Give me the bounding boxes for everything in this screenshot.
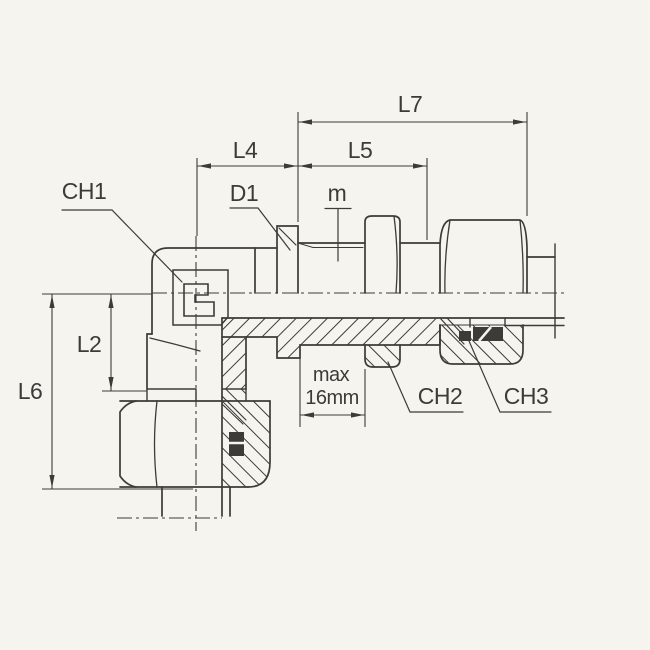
arrow-l2-top: [108, 295, 113, 308]
arrow-l2-bottom: [108, 377, 113, 390]
label-max-line1: max: [313, 364, 350, 386]
arrow-l5-left: [299, 163, 312, 168]
section-hatching: [222, 318, 523, 487]
bulkhead-flange-chamfer: [279, 228, 296, 245]
label-l6: L6: [18, 378, 43, 404]
arrow-l5-right: [413, 163, 426, 168]
arrow-l7-left: [299, 119, 312, 124]
arrow-max-right: [351, 412, 364, 417]
leader-m: [325, 209, 351, 262]
nut-ch3-facet-lines: [445, 220, 523, 293]
label-m: m: [328, 180, 347, 206]
label-ch1: CH1: [62, 178, 107, 204]
leader-ch1: [62, 210, 182, 282]
locknut-facet-line: [394, 216, 397, 293]
arrow-l6-bottom: [49, 475, 54, 488]
bottom-nut-facet-line: [155, 401, 158, 487]
fitting-drawing: CH1 D1 m L4 L5 L7 L2 L6 max 16mm CH2 CH3: [0, 0, 650, 650]
leader-d1: [230, 208, 290, 250]
label-l4: L4: [233, 137, 258, 163]
cutting-ring-right-nub: [459, 331, 471, 341]
label-ch3: CH3: [504, 383, 549, 409]
dimension-arrowheads: [49, 119, 526, 488]
label-max-line2: 16mm: [305, 387, 359, 409]
label-l2: L2: [77, 331, 102, 357]
reference-lines: [42, 294, 193, 489]
technical-drawing-page: CH1 D1 m L4 L5 L7 L2 L6 max 16mm CH2 CH3: [0, 0, 650, 650]
arrow-l4-left: [198, 163, 211, 168]
arrow-l7-right: [513, 119, 526, 124]
label-l7: L7: [398, 91, 423, 117]
label-d1: D1: [230, 180, 258, 206]
locknut-section-hatch: [365, 345, 400, 367]
leader-lines: [62, 208, 551, 412]
logo-stamp-glyph: [184, 284, 214, 316]
elbow-leg-wall-hatch: [222, 337, 246, 389]
elbow-body-fillet: [150, 338, 200, 351]
nut-ch3-outline: [440, 220, 527, 293]
arrow-l6-top: [49, 295, 54, 308]
arrow-max-left: [301, 412, 314, 417]
label-l5: L5: [348, 137, 373, 163]
body-section-hatch: [222, 318, 440, 358]
bottom-nut-left-outline: [120, 401, 136, 487]
arrow-l4-right: [284, 163, 297, 168]
dimensions: [42, 112, 527, 489]
label-ch2: CH2: [418, 383, 463, 409]
